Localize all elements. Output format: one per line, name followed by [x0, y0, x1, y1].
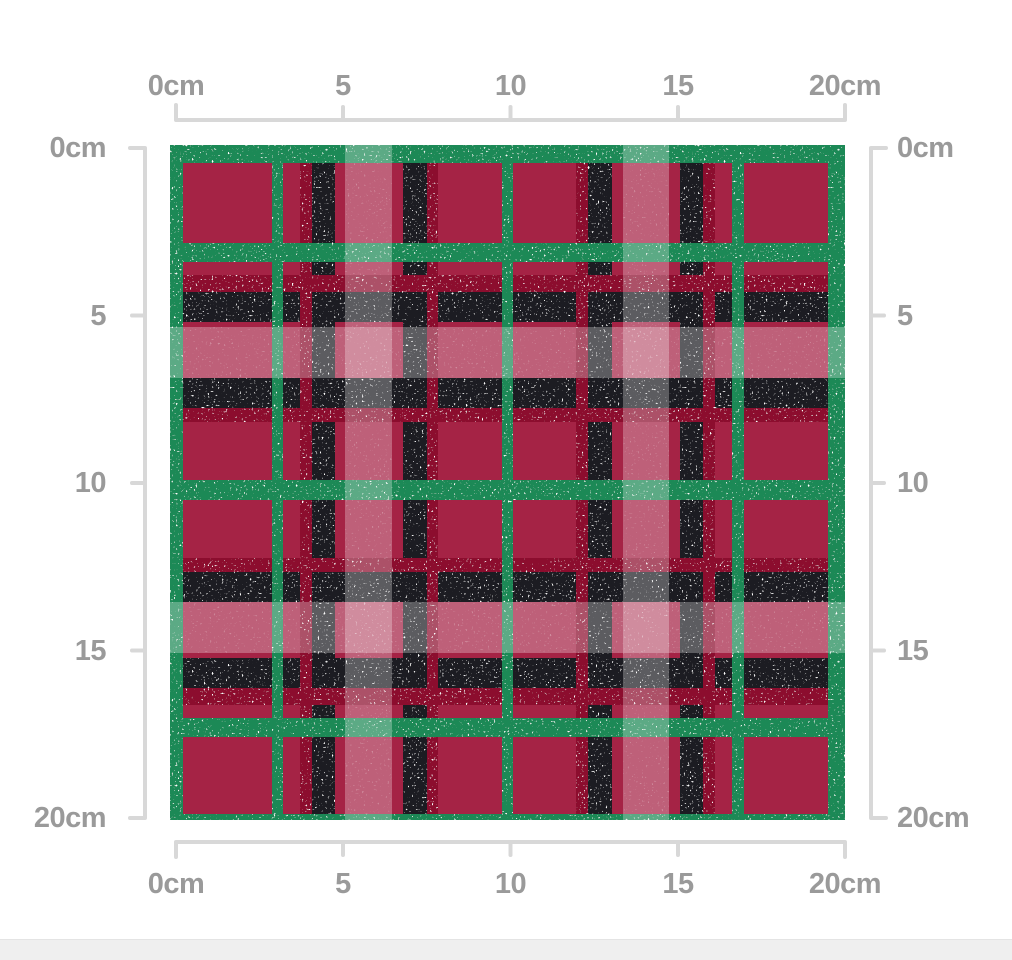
left-ruler-line	[130, 148, 145, 818]
top-ruler-label-5: 5	[335, 70, 351, 102]
plaid-band-green	[732, 145, 744, 820]
top-ruler-label-0: 0cm	[148, 70, 205, 102]
fabric-swatch-preview: 0cm 5 10 15 20cm 0cm 5 10 15 20cm 0cm 5 …	[0, 0, 1012, 960]
bottom-ruler-label-15: 15	[662, 868, 693, 900]
bottom-ruler-label-5: 5	[335, 868, 351, 900]
plaid-band-light	[170, 602, 845, 653]
plaid-swatch-image	[170, 145, 845, 820]
plaid-band-light	[345, 145, 392, 820]
plaid-band-green	[828, 145, 845, 820]
top-ruler-line	[176, 105, 845, 120]
plaid-band-green	[170, 145, 183, 820]
bottom-ruler-label-20: 20cm	[809, 868, 881, 900]
plaid-band-light	[170, 327, 845, 378]
bottom-ruler-line	[176, 842, 845, 857]
right-ruler-label-20: 20cm	[897, 802, 969, 834]
bottom-ruler-label-0: 0cm	[148, 868, 205, 900]
left-ruler-label-20: 20cm	[0, 802, 106, 834]
right-ruler-label-15: 15	[897, 635, 928, 667]
bottom-ruler-label-10: 10	[495, 868, 526, 900]
plaid-band-green	[502, 145, 513, 820]
top-ruler-label-10: 10	[495, 70, 526, 102]
plaid-bands	[170, 145, 845, 820]
left-ruler-label-0: 0cm	[0, 132, 106, 164]
top-ruler-label-15: 15	[662, 70, 693, 102]
plaid-band-green	[272, 145, 283, 820]
plaid-band-light	[623, 145, 669, 820]
right-ruler-label-10: 10	[897, 467, 928, 499]
right-ruler-label-5: 5	[897, 300, 913, 332]
bottom-bar	[0, 939, 1012, 960]
right-ruler-label-0: 0cm	[897, 132, 954, 164]
left-ruler-label-5: 5	[0, 300, 106, 332]
top-ruler-label-20: 20cm	[809, 70, 881, 102]
left-ruler-label-10: 10	[0, 467, 106, 499]
right-ruler-line	[871, 148, 886, 818]
left-ruler-label-15: 15	[0, 635, 106, 667]
